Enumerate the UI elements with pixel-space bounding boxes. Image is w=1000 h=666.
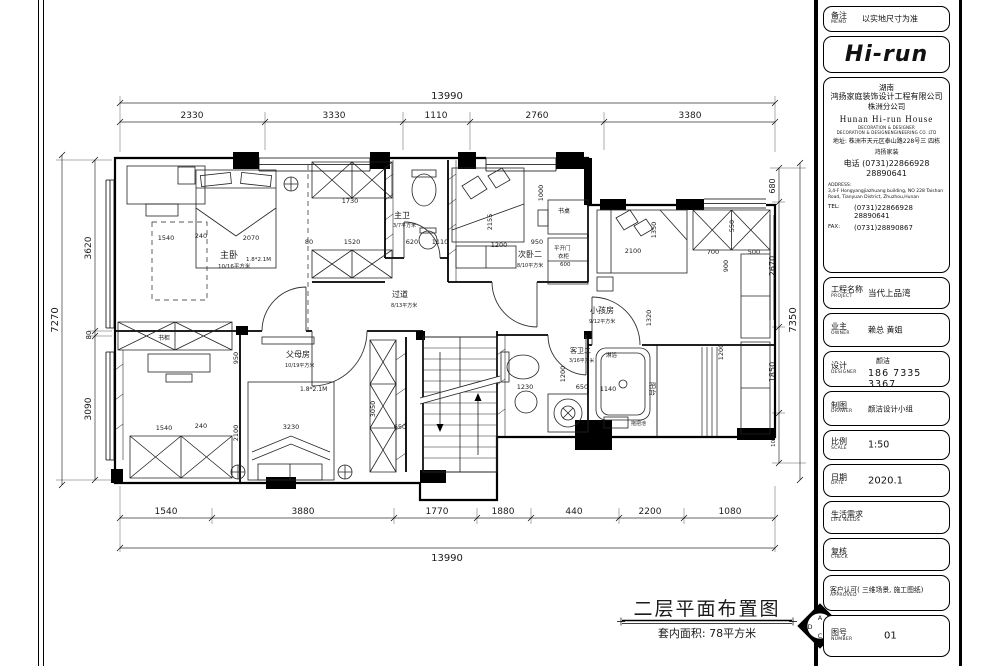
label-wardrobe: 衣柜 [558,252,570,260]
company-address2: 鸿扬家装 [828,149,945,157]
company-en-addr-label: ADDRESS: [828,183,851,188]
dim-bottom-4: 440 [565,507,582,517]
room-corridor-area: 8/13平方米 [391,302,417,309]
idim: 1540 [158,234,175,242]
titleblock-life-needs: 生活需求LIFE NEEDS [823,501,950,534]
room-bedroom2: 次卧二 [518,249,542,259]
dim-bottom-3: 1880 [492,507,515,517]
idim: 3050 [369,401,377,418]
approved-label-en: APPROVED [830,594,942,599]
bookcase-top [118,322,232,350]
idim: 1110 [432,238,449,246]
number-value: 01 [884,631,897,642]
idim: 650 [576,383,588,391]
room-master-area: 10/16平方米 [218,262,251,270]
project-label-en: PROJECT [831,295,863,300]
titleblock-designer: 设计DESIGNER 颜洁 186 7335 3367 [823,351,950,387]
walls [111,152,775,500]
project-value: 当代上品湾 [868,287,945,299]
stairs [420,337,500,472]
bedroom2-desk-chair [538,210,548,226]
idim: 2100 [625,247,642,255]
titleblock-date: 日期DATE 2020.1 [823,464,950,497]
dim-bottom-total: 13990 [431,553,463,564]
company-en-line2: DECORATION & DESIGNENGINEERING CO. LTD [828,130,945,135]
idim: 1320 [645,310,653,327]
room-master-bath: 主卫 [394,210,410,220]
tel-value: (0731)22866928 28890641 [854,204,913,222]
plan-subtitle: 套内面积: 78平方米 [658,626,756,640]
parents-bed [248,382,334,480]
dim-right-total: 7350 [788,307,799,332]
titleblock-logo: Hi-run [823,36,950,73]
designer-name: 颜洁 [876,356,890,366]
toilet-guest [507,355,539,379]
titleblock-scale: 比例SCALE 1:50 [823,430,950,460]
idim: 1730 [342,197,359,205]
label-desk: 书桌 [558,207,570,215]
idim: 1540 [156,424,173,432]
idim: 500 [748,248,760,256]
dim-bottom-2: 1770 [426,507,449,517]
label-mop-pool: 拖把池 [631,420,646,427]
label-bookcase: 书柜 [158,334,170,342]
idim: 1200 [717,344,725,361]
compass-d: D [807,623,812,631]
life-needs-label-en: LIFE NEEDS [831,519,863,524]
tea-table [148,354,210,372]
master-desk-chair [146,204,178,216]
titleblock-project: 工程名称PROJECT 当代上品湾 [823,277,950,309]
dimension-text: 13990 2330 3330 1110 2760 3380 13990 154… [50,91,799,564]
sink-guest [515,391,537,413]
room-guest-bath-area: 3/16平方米 [569,357,594,364]
company-name: 鸿扬家庭装饰设计工程有限公司 [828,92,945,102]
label-wardrobe-w: 600 [560,262,571,268]
plan-title-block: 二层平面布置图 套内面积: 78平方米 [617,598,797,640]
bookcase-bottom [130,436,232,478]
idim: 700 [707,248,719,256]
idim: 620 [406,238,418,246]
stool [166,374,192,382]
furniture [118,162,770,480]
company-en-addr: 3,4-F Hongyangjiazhuang building, NO 228… [828,189,943,200]
columns [111,152,775,489]
number-label-en: NUMBER [831,638,852,643]
idim: 80 [305,238,313,246]
dim-left-1: 80 [85,331,93,340]
titleblock-owner: 业主OWNER 赖总 黄姐 [823,313,950,347]
drawer-value: 颜洁设计小组 [868,403,945,414]
kids-desk-band [741,254,770,434]
memo-label-en: MEMO [831,21,847,26]
idim: 900 [722,260,730,272]
dim-top-0: 2330 [181,111,204,121]
room-corridor: 过道 [392,289,408,299]
tel-label: TEL: [828,204,854,222]
dim-left-2: 3090 [84,397,94,420]
toilet-master [412,174,436,206]
check-label-en: CHECK [831,556,848,561]
company-phone: 电话 (0731)22866928 [828,159,945,169]
date-label-en: DATE [831,482,847,487]
room-master: 主卧 [220,249,238,261]
room-kids: 小孩房 [590,305,614,315]
dim-top-3: 2760 [526,111,549,121]
bay-dashed [152,165,308,331]
drawing-sheet: 13990 2330 3330 1110 2760 3380 13990 154… [0,0,1000,666]
room-master-bed: 1.8*2.1M [246,257,271,263]
master-desk [127,166,205,204]
room-parents-bed: 1.8*2.1M [300,386,327,393]
company-name-en: Hunan Hi-run House [828,114,945,125]
shower [596,348,650,420]
drawer-label-en: DRAWER [831,410,852,415]
idim: 3230 [283,423,300,431]
owner-label-en: OWNER [831,332,850,337]
fax-label: FAX: [828,224,854,233]
titleblock-number: 图号NUMBER 01 [823,615,950,657]
idim: 650 [394,423,406,431]
dim-top-4: 3380 [679,111,702,121]
dim-bottom-6: 1080 [719,507,742,517]
company-branch: 株洲分公司 [828,102,945,111]
designer-label-en: DESIGNER [831,371,857,376]
plan-title: 二层平面布置图 [633,598,780,620]
titleblock-drawer: 制图DRAWER 颜洁设计小组 [823,391,950,426]
dim-right-0: 680 [768,178,777,193]
room-guest-bath: 客卫二 [570,346,591,355]
idim: 240 [195,422,207,430]
scale-label-en: SCALE [831,447,847,452]
memo-value: 以实地尺寸为准 [862,14,945,25]
idim: 240 [195,232,207,240]
dim-top-1: 3330 [323,111,346,121]
sink-master-counter [420,228,436,233]
company-phone2: 28890641 [828,169,945,179]
idim: 550 [728,220,736,232]
idim: 950 [531,238,543,246]
titleblock-check: 复核CHECK [823,538,950,571]
dim-top-total: 13990 [431,91,463,102]
idim: 2070 [243,234,260,242]
bedroom2-wardrobe [548,238,588,284]
company-region: 湖南 [828,83,945,92]
titleblock-memo: 备注MEMO 以实地尺寸为准 [823,6,950,32]
scale-value: 1:50 [868,440,945,451]
fax-value: (0731)28890867 [854,224,913,233]
dim-bottom-0: 1540 [155,507,178,517]
idim: 2155 [486,214,494,231]
company-logo: Hi-run [824,37,949,72]
idim: 2100 [232,425,240,442]
label-swing-door: 平开门 [554,244,571,252]
idim: 1200 [559,366,567,383]
dim-bottom-5: 2200 [639,507,662,517]
titleblock-company: 湖南 鸿扬家庭装饰设计工程有限公司 株洲分公司 Hunan Hi-run Hou… [823,77,950,273]
dim-left-0: 3620 [84,236,94,259]
kids-bed [597,210,687,291]
idim: 1200 [491,241,508,249]
dim-left-total: 7270 [50,307,61,332]
label-shower: 淋浴 [606,351,618,359]
room-bedroom2-area: 8/10平方米 [517,262,543,269]
designer-phone: 186 7335 3367 [868,368,949,390]
dim-bottom-1: 3880 [292,507,315,517]
nightstand [178,167,195,184]
titleblock-approved: 客户认可( 三维场景, 施工图纸)APPROVED [823,575,950,611]
compass-a: A [818,614,823,622]
compass-c: C [818,632,823,640]
label-balcony: 阳台 [648,382,657,396]
room-master-bath-area: 3/7平方米 [393,222,416,229]
idim: 1000 [537,185,545,202]
parents-lamp [262,337,314,344]
idim: 950 [232,352,240,364]
bedroom2-desk [548,200,588,234]
idim: 1140 [600,385,617,393]
dim-top-2: 1110 [425,111,448,121]
owner-value: 赖总 黄姐 [868,325,945,336]
wardrobe-b [312,250,392,278]
room-parents-area: 10/19平方米 [285,362,314,369]
idim: 1230 [517,383,534,391]
room-parents: 父母房 [286,349,310,359]
room-kids-area: 9/12平方米 [589,318,615,325]
toilet-master-tank [412,170,436,177]
date-value: 2020.1 [868,475,945,486]
idim: 1350 [650,222,658,239]
idim: 1520 [344,238,361,246]
company-address: 地址: 株洲市天元区泰山路228号三 四栋 [828,138,945,146]
